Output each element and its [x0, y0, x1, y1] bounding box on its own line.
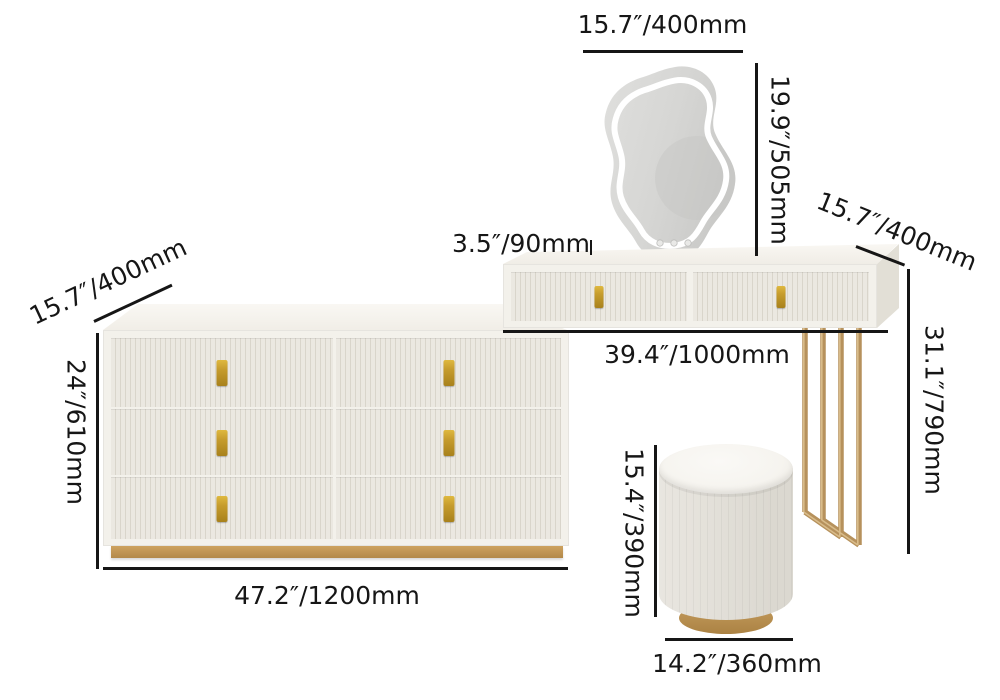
vanity-table-front [503, 264, 877, 328]
product-dimension-diagram: 15.7″/400mm 19.9″/505mm 3.5″/90mm 15.7″/… [0, 0, 1000, 700]
dim-line-stool-height [654, 445, 657, 617]
dim-line-dresser-height [96, 333, 99, 569]
dresser-drawer [111, 477, 333, 539]
dim-line-stool-diameter [665, 638, 793, 641]
vanity-drawer [693, 272, 869, 321]
drawer-handle [217, 496, 228, 522]
dim-label-dresser-height: 24″/610mm [58, 342, 92, 522]
drawer-handle [443, 496, 454, 522]
dim-label-stool-height: 15.4″/390mm [616, 447, 650, 619]
touch-buttons-icon [657, 240, 691, 246]
dim-label-mirror-width: 15.7″/400mm [575, 11, 750, 40]
dim-label-dresser-width: 47.2″/1200mm [177, 582, 477, 611]
dresser-drawer [111, 338, 333, 407]
dim-line-table-height [907, 269, 910, 554]
dim-label-mirror-height: 19.9″/505mm [762, 69, 796, 251]
dim-line-mirror-height [755, 63, 758, 256]
dresser-drawer [336, 409, 561, 475]
dim-label-table-height: 31.1″/790mm [916, 322, 950, 498]
dresser-front [103, 330, 569, 546]
dim-line-dresser-width [103, 567, 568, 570]
drawer-handle [217, 360, 228, 386]
dresser-drawer [336, 477, 561, 539]
dim-label-table-drawer-height: 3.5″/90mm [452, 230, 580, 259]
dim-line-table-width [503, 330, 888, 333]
mirror [597, 64, 749, 264]
drawer-handle [217, 430, 228, 456]
drawer-handle [443, 430, 454, 456]
dresser-plinth [111, 546, 563, 558]
dresser-drawer [336, 338, 561, 407]
dresser-drawer [111, 409, 333, 475]
dim-line-mirror-width [583, 50, 743, 53]
drawer-handle [595, 286, 604, 308]
dim-tick-table-drawer [590, 240, 592, 255]
dim-label-stool-diameter: 14.2″/360mm [627, 650, 847, 679]
drawer-handle [777, 286, 786, 308]
stool-top [659, 444, 793, 494]
drawer-handle [443, 360, 454, 386]
dim-label-table-width: 39.4″/1000mm [547, 341, 847, 370]
vanity-drawer [511, 272, 687, 321]
